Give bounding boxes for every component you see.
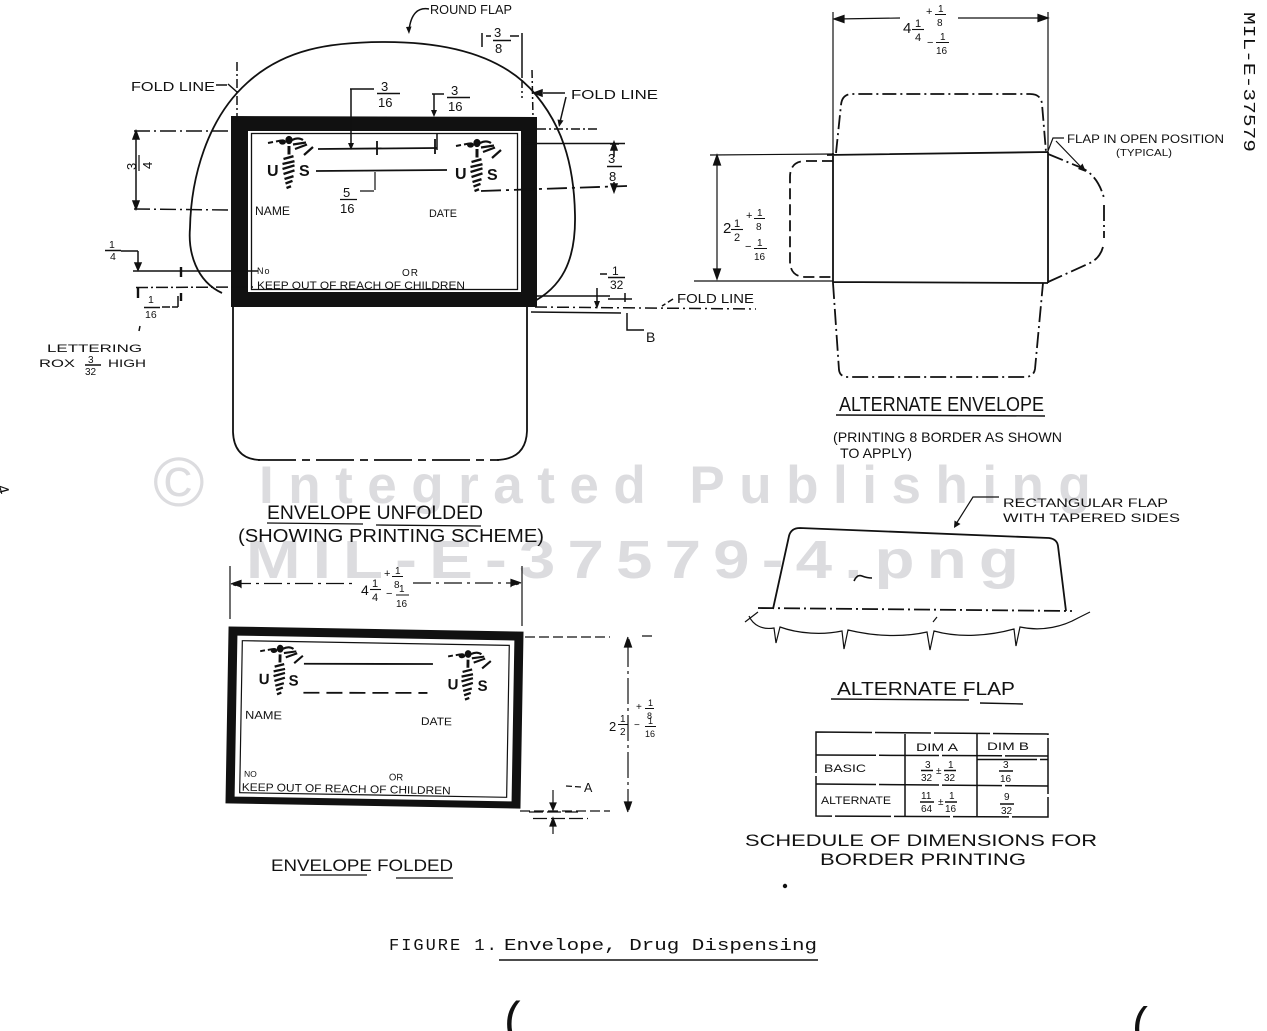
svg-text:2: 2 — [620, 727, 626, 738]
svg-text:NO: NO — [244, 769, 257, 779]
svg-text:−: − — [745, 241, 751, 253]
svg-text:FOLD LINE: FOLD LINE — [677, 292, 754, 306]
svg-text:4: 4 — [372, 592, 378, 604]
svg-text:+: + — [636, 702, 642, 713]
svg-text:1: 1 — [734, 218, 740, 230]
svg-text:NAME: NAME — [255, 206, 290, 218]
svg-text:11: 11 — [921, 791, 932, 802]
svg-text:U: U — [455, 166, 467, 183]
svg-text:9: 9 — [1004, 792, 1010, 803]
svg-text:±: ± — [936, 766, 942, 777]
svg-text:(: ( — [1132, 999, 1148, 1031]
svg-text:HIGH: HIGH — [108, 358, 146, 370]
svg-text:4: 4 — [110, 251, 116, 263]
svg-text:3: 3 — [381, 79, 388, 94]
svg-text:1: 1 — [372, 578, 378, 590]
svg-text:FIGURE 1.: FIGURE 1. — [389, 937, 499, 956]
svg-text:+: + — [746, 210, 752, 222]
svg-text:64: 64 — [921, 804, 933, 815]
svg-text:KEEP OUT OF REACH OF CHILDREN: KEEP OUT OF REACH OF CHILDREN — [242, 782, 451, 798]
svg-text:16: 16 — [754, 252, 766, 263]
svg-text:DATE: DATE — [421, 716, 452, 729]
svg-text:16: 16 — [448, 99, 462, 114]
svg-text:32: 32 — [1001, 806, 1013, 817]
svg-text:16: 16 — [396, 599, 408, 610]
svg-text:NAME: NAME — [245, 710, 283, 723]
svg-text:1: 1 — [938, 4, 944, 15]
svg-text:32: 32 — [85, 367, 97, 378]
svg-text:ALTERNATE FLAP: ALTERNATE FLAP — [837, 679, 1015, 699]
svg-text:32: 32 — [921, 773, 933, 784]
svg-text:WITH TAPERED SIDES: WITH TAPERED SIDES — [1003, 511, 1180, 525]
svg-text:5: 5 — [343, 185, 350, 200]
svg-text:ROUND FLAP: ROUND FLAP — [430, 3, 512, 17]
svg-text:ALTERNATE: ALTERNATE — [821, 795, 891, 807]
svg-text:KEEP OUT OF REACH OF CHILDREN: KEEP OUT OF REACH OF CHILDREN — [257, 280, 465, 292]
svg-text:BASIC: BASIC — [824, 763, 866, 775]
svg-text:1: 1 — [620, 714, 626, 725]
svg-text:U: U — [259, 671, 270, 688]
svg-text:4: 4 — [915, 32, 921, 44]
svg-text:1: 1 — [395, 566, 401, 577]
svg-text:+: + — [384, 568, 390, 580]
svg-text:1: 1 — [757, 238, 763, 249]
svg-text:S: S — [288, 673, 298, 690]
svg-text:16: 16 — [1000, 774, 1012, 785]
svg-text:S: S — [487, 167, 498, 184]
svg-text:No: No — [257, 266, 271, 276]
svg-text:(PRINTING 8 BORDER AS SHOWN: (PRINTING 8 BORDER AS SHOWN — [833, 429, 1062, 445]
svg-text:(TYPICAL): (TYPICAL) — [1116, 148, 1172, 159]
svg-text:A: A — [584, 781, 593, 795]
svg-text:−: − — [634, 720, 640, 731]
svg-text:BORDER PRINTING: BORDER PRINTING — [820, 850, 1026, 869]
svg-text:8: 8 — [495, 41, 502, 56]
svg-text:8: 8 — [609, 169, 616, 184]
svg-text:16: 16 — [936, 46, 948, 57]
svg-text:DIM A: DIM A — [916, 742, 959, 754]
svg-text:MIL-E-37579: MIL-E-37579 — [1238, 12, 1257, 152]
svg-text:ENVELOPE FOLDED: ENVELOPE FOLDED — [271, 856, 453, 875]
svg-text:2: 2 — [734, 232, 740, 244]
svg-text:2: 2 — [609, 719, 616, 734]
svg-text:S: S — [477, 678, 487, 695]
svg-text:ROX: ROX — [39, 358, 76, 370]
svg-text:ENVELOPE UNFOLDED: ENVELOPE UNFOLDED — [267, 503, 483, 524]
svg-text:(: ( — [504, 992, 521, 1031]
svg-text:DIM B: DIM B — [987, 741, 1029, 753]
svg-text:OR: OR — [402, 268, 419, 279]
svg-text:4: 4 — [361, 582, 369, 598]
svg-text:U: U — [447, 676, 458, 693]
svg-text:(SHOWING PRINTING SCHEME): (SHOWING PRINTING SCHEME) — [238, 526, 544, 546]
svg-text:+: + — [926, 6, 932, 18]
svg-text:RECTANGULAR FLAP: RECTANGULAR FLAP — [1003, 496, 1168, 510]
svg-text:4: 4 — [903, 20, 911, 37]
svg-text:TO APPLY): TO APPLY) — [840, 445, 912, 461]
svg-text:1: 1 — [915, 18, 921, 30]
svg-text:16: 16 — [645, 729, 655, 739]
svg-text:16: 16 — [145, 309, 157, 321]
svg-text:ALTERNATE ENVELOPE: ALTERNATE ENVELOPE — [839, 394, 1044, 416]
svg-text:1: 1 — [148, 294, 154, 306]
svg-text:3: 3 — [1003, 760, 1009, 771]
svg-text:FOLD LINE: FOLD LINE — [571, 88, 658, 102]
svg-text:4: 4 — [140, 162, 155, 169]
svg-text:DATE: DATE — [429, 208, 457, 220]
svg-text:3: 3 — [494, 25, 501, 40]
svg-text:FLAP IN OPEN POSITION: FLAP IN OPEN POSITION — [1067, 132, 1224, 146]
svg-text:1: 1 — [948, 760, 954, 771]
svg-text:4: 4 — [0, 483, 12, 496]
svg-text:©: © — [153, 443, 205, 521]
svg-text:1: 1 — [949, 791, 955, 802]
svg-text:Envelope, Drug Dispensing: Envelope, Drug Dispensing — [504, 937, 817, 956]
svg-text:8: 8 — [937, 18, 943, 29]
svg-text:32: 32 — [944, 773, 956, 784]
svg-text:FOLD LINE: FOLD LINE — [131, 80, 215, 94]
svg-text:1: 1 — [612, 264, 619, 278]
svg-text:16: 16 — [378, 95, 392, 110]
svg-text:16: 16 — [945, 804, 957, 815]
svg-text:−: − — [386, 588, 392, 600]
svg-text:8: 8 — [756, 222, 762, 233]
svg-text:2: 2 — [723, 220, 731, 237]
svg-text:1: 1 — [648, 698, 653, 708]
svg-text:±: ± — [938, 797, 944, 808]
svg-text:1: 1 — [757, 208, 763, 219]
svg-text:U: U — [267, 163, 279, 180]
svg-text:SCHEDULE OF DIMENSIONS FOR: SCHEDULE OF DIMENSIONS FOR — [745, 831, 1097, 850]
svg-text:32: 32 — [610, 278, 624, 292]
svg-text:1: 1 — [940, 32, 946, 43]
svg-text:16: 16 — [340, 201, 354, 216]
svg-text:1: 1 — [648, 716, 653, 726]
svg-text:LETTERING: LETTERING — [47, 343, 142, 355]
svg-text:3: 3 — [925, 760, 931, 771]
svg-text:1: 1 — [109, 239, 115, 251]
svg-text:−: − — [927, 37, 933, 49]
svg-text:OR: OR — [389, 772, 404, 783]
svg-text:3: 3 — [451, 83, 458, 98]
svg-text:1: 1 — [399, 584, 405, 595]
svg-text:B: B — [646, 329, 655, 345]
svg-text:S: S — [299, 163, 310, 180]
